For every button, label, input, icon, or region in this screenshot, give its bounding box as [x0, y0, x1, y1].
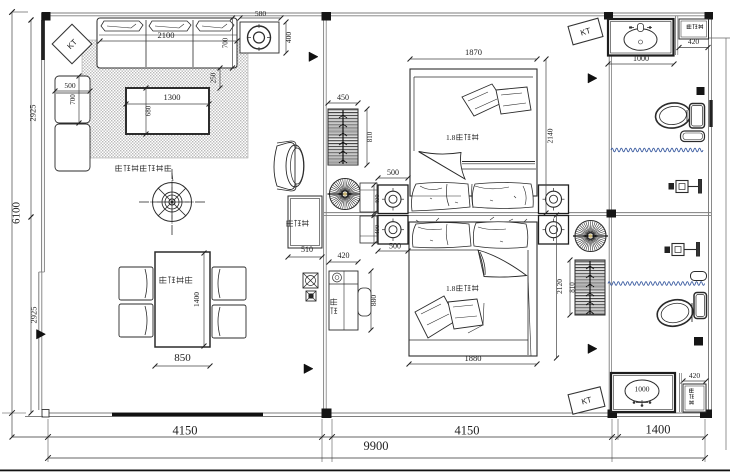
- svg-text:2120: 2120: [555, 279, 564, 294]
- svg-text:1.8: 1.8: [446, 133, 456, 142]
- svg-text:420: 420: [338, 251, 350, 260]
- svg-text:9900: 9900: [364, 439, 389, 453]
- svg-text:2925: 2925: [29, 307, 39, 324]
- svg-text:1880: 1880: [465, 353, 482, 363]
- svg-text:2925: 2925: [28, 105, 38, 122]
- svg-text:700: 700: [222, 37, 230, 48]
- svg-text:500: 500: [389, 242, 401, 251]
- svg-text:2140: 2140: [546, 128, 555, 143]
- svg-text:1000: 1000: [635, 385, 650, 394]
- svg-text:880: 880: [369, 295, 378, 307]
- svg-text:810: 810: [366, 131, 374, 142]
- svg-text:450: 450: [337, 93, 349, 102]
- svg-text:510: 510: [301, 245, 313, 254]
- svg-text:1400: 1400: [646, 423, 671, 437]
- svg-text:400: 400: [374, 225, 381, 235]
- svg-text:500: 500: [64, 81, 76, 90]
- svg-text:680: 680: [145, 105, 153, 116]
- svg-text:1400: 1400: [192, 292, 201, 307]
- svg-text:420: 420: [689, 371, 701, 380]
- svg-text:4150: 4150: [455, 424, 480, 438]
- svg-text:1300: 1300: [164, 92, 181, 102]
- svg-text:420: 420: [688, 37, 700, 46]
- svg-text:4150: 4150: [173, 424, 198, 438]
- svg-text:1870: 1870: [465, 47, 482, 57]
- svg-text:250: 250: [210, 72, 218, 83]
- svg-text:850: 850: [174, 352, 191, 364]
- svg-text:400: 400: [284, 32, 293, 44]
- svg-text:1000: 1000: [633, 54, 649, 63]
- svg-text:580: 580: [255, 9, 267, 18]
- svg-text:1.8: 1.8: [446, 284, 456, 293]
- svg-text:6100: 6100: [11, 202, 23, 225]
- svg-text:810: 810: [569, 282, 577, 293]
- svg-text:700: 700: [69, 94, 77, 105]
- svg-text:400: 400: [374, 194, 381, 204]
- svg-text:2100: 2100: [158, 30, 175, 40]
- svg-text:500: 500: [387, 168, 399, 177]
